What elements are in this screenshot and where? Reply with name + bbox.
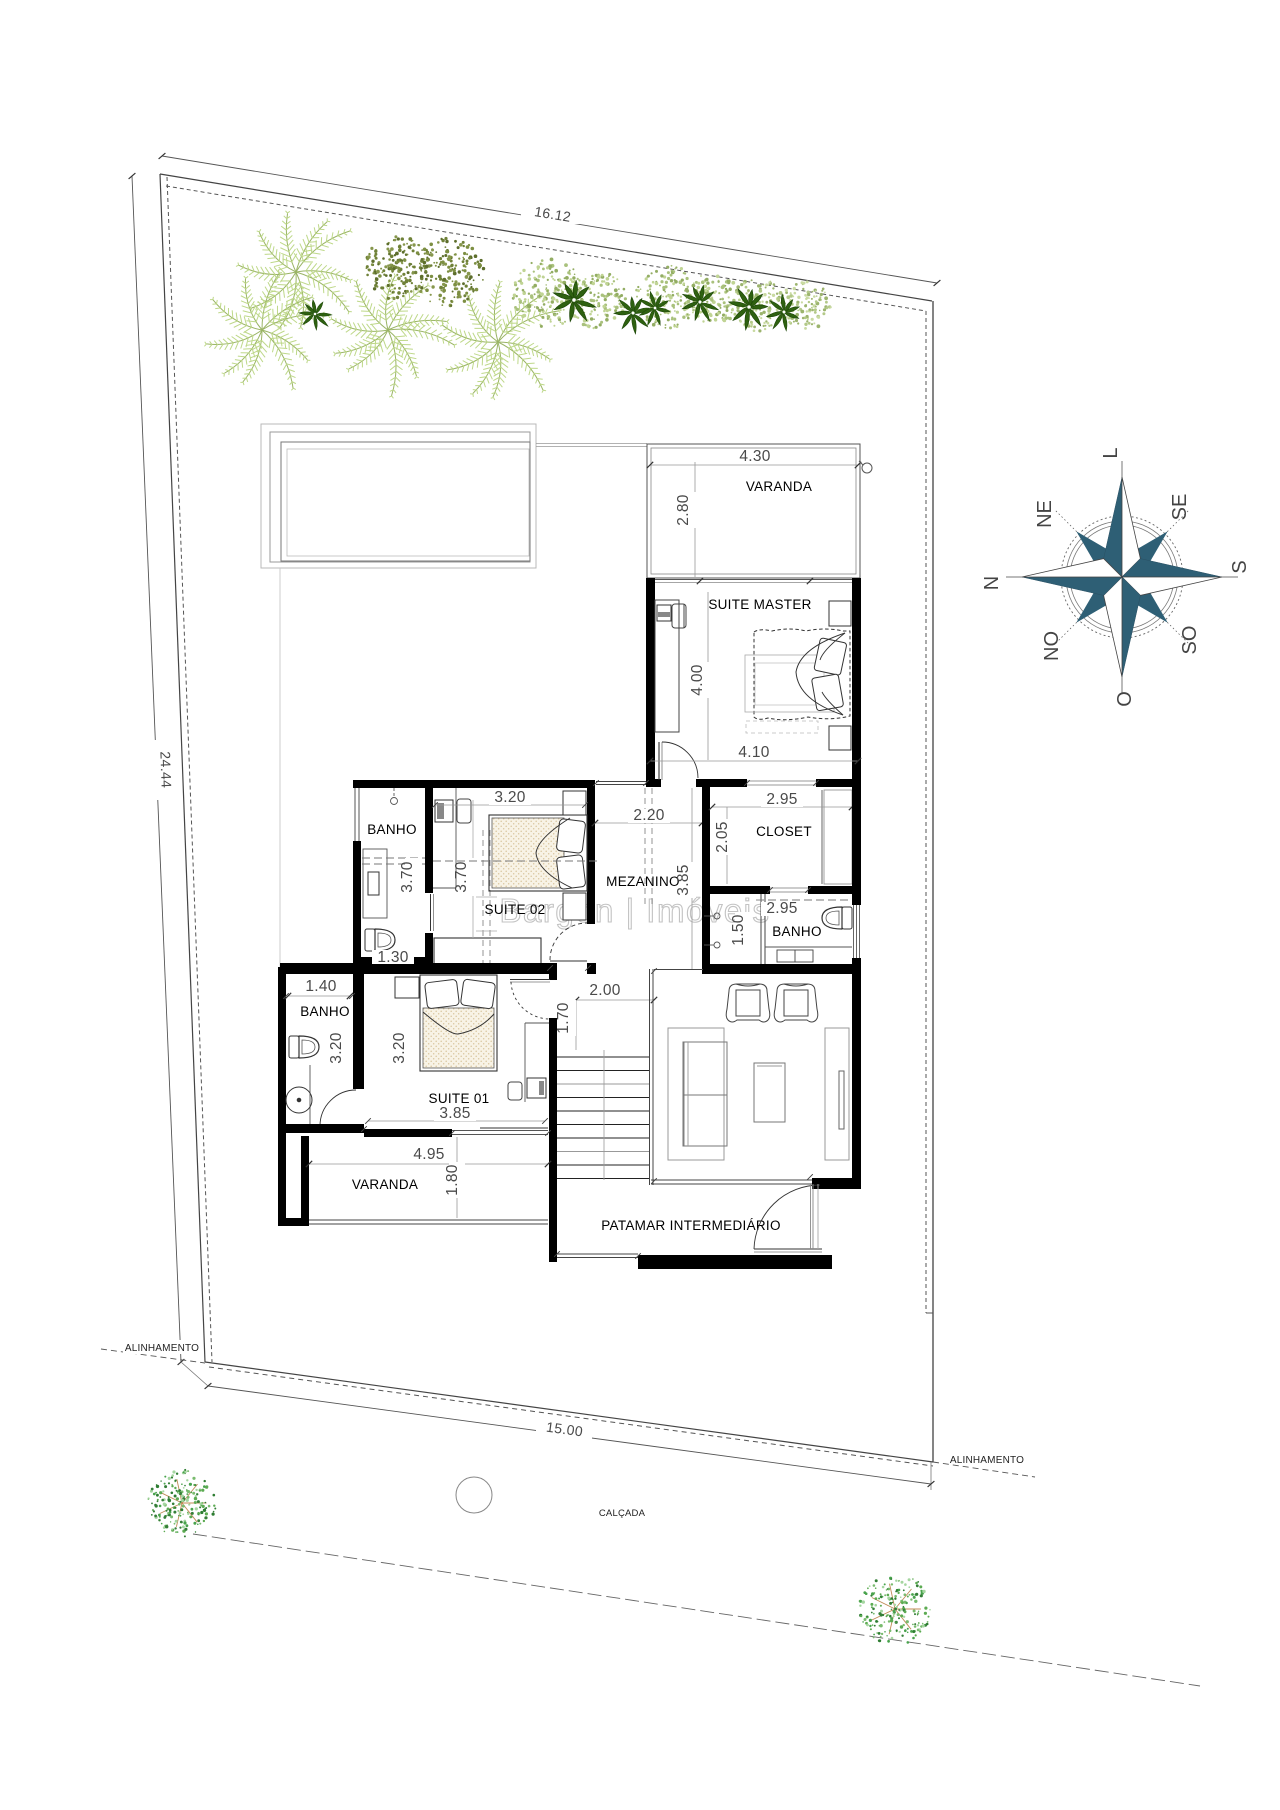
svg-text:4.00: 4.00 [689, 664, 706, 695]
svg-text:1.50: 1.50 [730, 914, 747, 945]
svg-text:S: S [1229, 560, 1251, 573]
svg-text:SUITE 01: SUITE 01 [429, 1091, 490, 1106]
svg-text:ALINHAMENTO: ALINHAMENTO [125, 1343, 199, 1354]
svg-text:MEZANINO: MEZANINO [606, 874, 680, 889]
svg-text:1.40: 1.40 [305, 978, 336, 995]
svg-text:3.70: 3.70 [453, 861, 470, 892]
svg-text:BANHO: BANHO [300, 1004, 350, 1019]
svg-text:BANHO: BANHO [772, 924, 822, 939]
svg-text:4.10: 4.10 [738, 744, 769, 761]
svg-text:VARANDA: VARANDA [352, 1177, 418, 1192]
svg-text:SO: SO [1179, 626, 1201, 655]
svg-text:1.70: 1.70 [555, 1002, 572, 1033]
svg-text:NO: NO [1041, 631, 1063, 661]
svg-text:3.20: 3.20 [328, 1032, 345, 1063]
svg-text:2.05: 2.05 [714, 821, 731, 852]
svg-text:NE: NE [1034, 500, 1056, 528]
svg-text:2.95: 2.95 [766, 791, 797, 808]
svg-text:3.85: 3.85 [439, 1105, 470, 1122]
svg-text:3.85: 3.85 [675, 864, 692, 895]
svg-text:L: L [1100, 447, 1122, 458]
svg-text:BANHO: BANHO [367, 822, 417, 837]
svg-text:3.20: 3.20 [494, 789, 525, 806]
svg-text:O: O [1114, 691, 1136, 707]
svg-text:PATAMAR INTERMEDIÁRIO: PATAMAR INTERMEDIÁRIO [601, 1218, 781, 1233]
svg-text:VARANDA: VARANDA [746, 479, 812, 494]
svg-text:SUITE 02: SUITE 02 [485, 902, 546, 917]
svg-text:CALÇADA: CALÇADA [599, 1508, 646, 1519]
svg-text:3.20: 3.20 [391, 1032, 408, 1063]
svg-text:SUITE MASTER: SUITE MASTER [708, 597, 811, 612]
svg-text:2.80: 2.80 [675, 494, 692, 525]
svg-text:CLOSET: CLOSET [756, 824, 812, 839]
svg-text:24.44: 24.44 [157, 751, 174, 789]
svg-text:4.30: 4.30 [739, 448, 770, 465]
svg-text:3.70: 3.70 [399, 861, 416, 892]
svg-text:1.30: 1.30 [377, 949, 408, 966]
svg-text:SE: SE [1169, 494, 1191, 521]
svg-text:4.95: 4.95 [413, 1146, 444, 1163]
svg-text:2.20: 2.20 [633, 807, 664, 824]
svg-text:ALINHAMENTO: ALINHAMENTO [950, 1455, 1024, 1466]
svg-text:2.95: 2.95 [766, 900, 797, 917]
svg-text:1.80: 1.80 [444, 1164, 461, 1195]
svg-text:2.00: 2.00 [589, 982, 620, 999]
svg-text:N: N [981, 576, 1003, 590]
